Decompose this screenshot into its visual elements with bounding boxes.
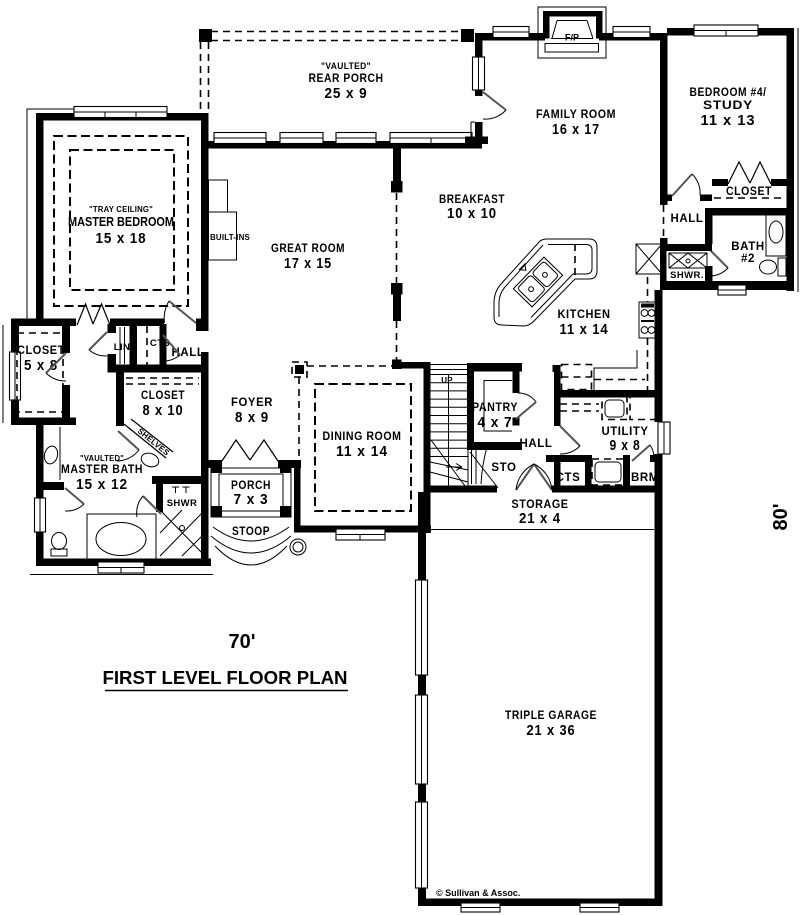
svg-text:70': 70' xyxy=(228,631,255,653)
svg-text:FIRST LEVEL FLOOR PLAN: FIRST LEVEL FLOOR PLAN xyxy=(103,667,348,688)
svg-text:16 x 17: 16 x 17 xyxy=(552,121,600,138)
svg-text:"VAULTED": "VAULTED" xyxy=(321,61,371,72)
svg-text:CLOSET: CLOSET xyxy=(726,186,772,198)
svg-text:DINING ROOM: DINING ROOM xyxy=(323,431,402,443)
svg-text:25 x 9: 25 x 9 xyxy=(325,85,368,102)
svg-text:MASTER BATH: MASTER BATH xyxy=(61,464,143,476)
svg-text:80': 80' xyxy=(770,503,792,530)
svg-text:STUDY: STUDY xyxy=(703,100,753,112)
svg-text:"TRAY CEILING": "TRAY CEILING" xyxy=(89,205,153,214)
svg-text:11 x 14: 11 x 14 xyxy=(336,443,388,460)
svg-text:HALL: HALL xyxy=(519,438,552,450)
svg-text:F/P: F/P xyxy=(565,33,579,43)
svg-text:BEDROOM #4/: BEDROOM #4/ xyxy=(690,87,767,99)
svg-text:UP: UP xyxy=(441,376,453,385)
svg-text:11 x 14: 11 x 14 xyxy=(560,321,609,338)
svg-text:BRM: BRM xyxy=(631,472,659,484)
svg-text:15 x 18: 15 x 18 xyxy=(96,230,147,247)
svg-text:SHWR: SHWR xyxy=(167,498,198,509)
svg-text:"VAULTED": "VAULTED" xyxy=(80,454,124,463)
svg-text:8 x 10: 8 x 10 xyxy=(143,402,184,419)
svg-text:MASTER BEDROOM: MASTER BEDROOM xyxy=(68,214,174,229)
svg-text:CTS: CTS xyxy=(556,472,581,484)
svg-text:9 x 8: 9 x 8 xyxy=(610,437,641,454)
svg-text:© Sullivan & Assoc.: © Sullivan & Assoc. xyxy=(436,888,520,898)
svg-text:LIN: LIN xyxy=(114,342,131,353)
svg-text:7 x 3: 7 x 3 xyxy=(234,491,269,508)
svg-text:STOOP: STOOP xyxy=(232,526,270,538)
svg-text:11 x 13: 11 x 13 xyxy=(701,112,756,129)
svg-text:17 x 15: 17 x 15 xyxy=(284,255,332,272)
svg-text:KITCHEN: KITCHEN xyxy=(558,309,611,321)
svg-text:CLOSET: CLOSET xyxy=(141,390,185,402)
svg-text:FOYER: FOYER xyxy=(231,397,273,409)
svg-text:4 x 7: 4 x 7 xyxy=(478,414,513,431)
svg-text:FAMILY ROOM: FAMILY ROOM xyxy=(536,109,616,121)
svg-text:PANTRY: PANTRY xyxy=(472,402,518,414)
svg-text:#2: #2 xyxy=(741,253,755,265)
svg-text:SHWR.: SHWR. xyxy=(670,270,704,281)
svg-text:HALL: HALL xyxy=(670,213,703,225)
svg-text:BUILT-INS: BUILT-INS xyxy=(210,233,250,242)
svg-text:TRIPLE GARAGE: TRIPLE GARAGE xyxy=(505,710,597,722)
svg-text:15 x 12: 15 x 12 xyxy=(76,476,128,493)
svg-text:21 x 4: 21 x 4 xyxy=(519,510,561,527)
svg-text:STO: STO xyxy=(491,462,516,474)
svg-text:REAR PORCH: REAR PORCH xyxy=(309,73,384,85)
svg-text:BATH: BATH xyxy=(731,241,765,253)
svg-text:GREAT ROOM: GREAT ROOM xyxy=(271,243,345,255)
svg-text:8 x 9: 8 x 9 xyxy=(235,409,269,426)
svg-text:21 x 36: 21 x 36 xyxy=(527,722,576,739)
svg-text:CLOSET: CLOSET xyxy=(17,345,65,357)
svg-text:10 x 10: 10 x 10 xyxy=(447,205,497,222)
